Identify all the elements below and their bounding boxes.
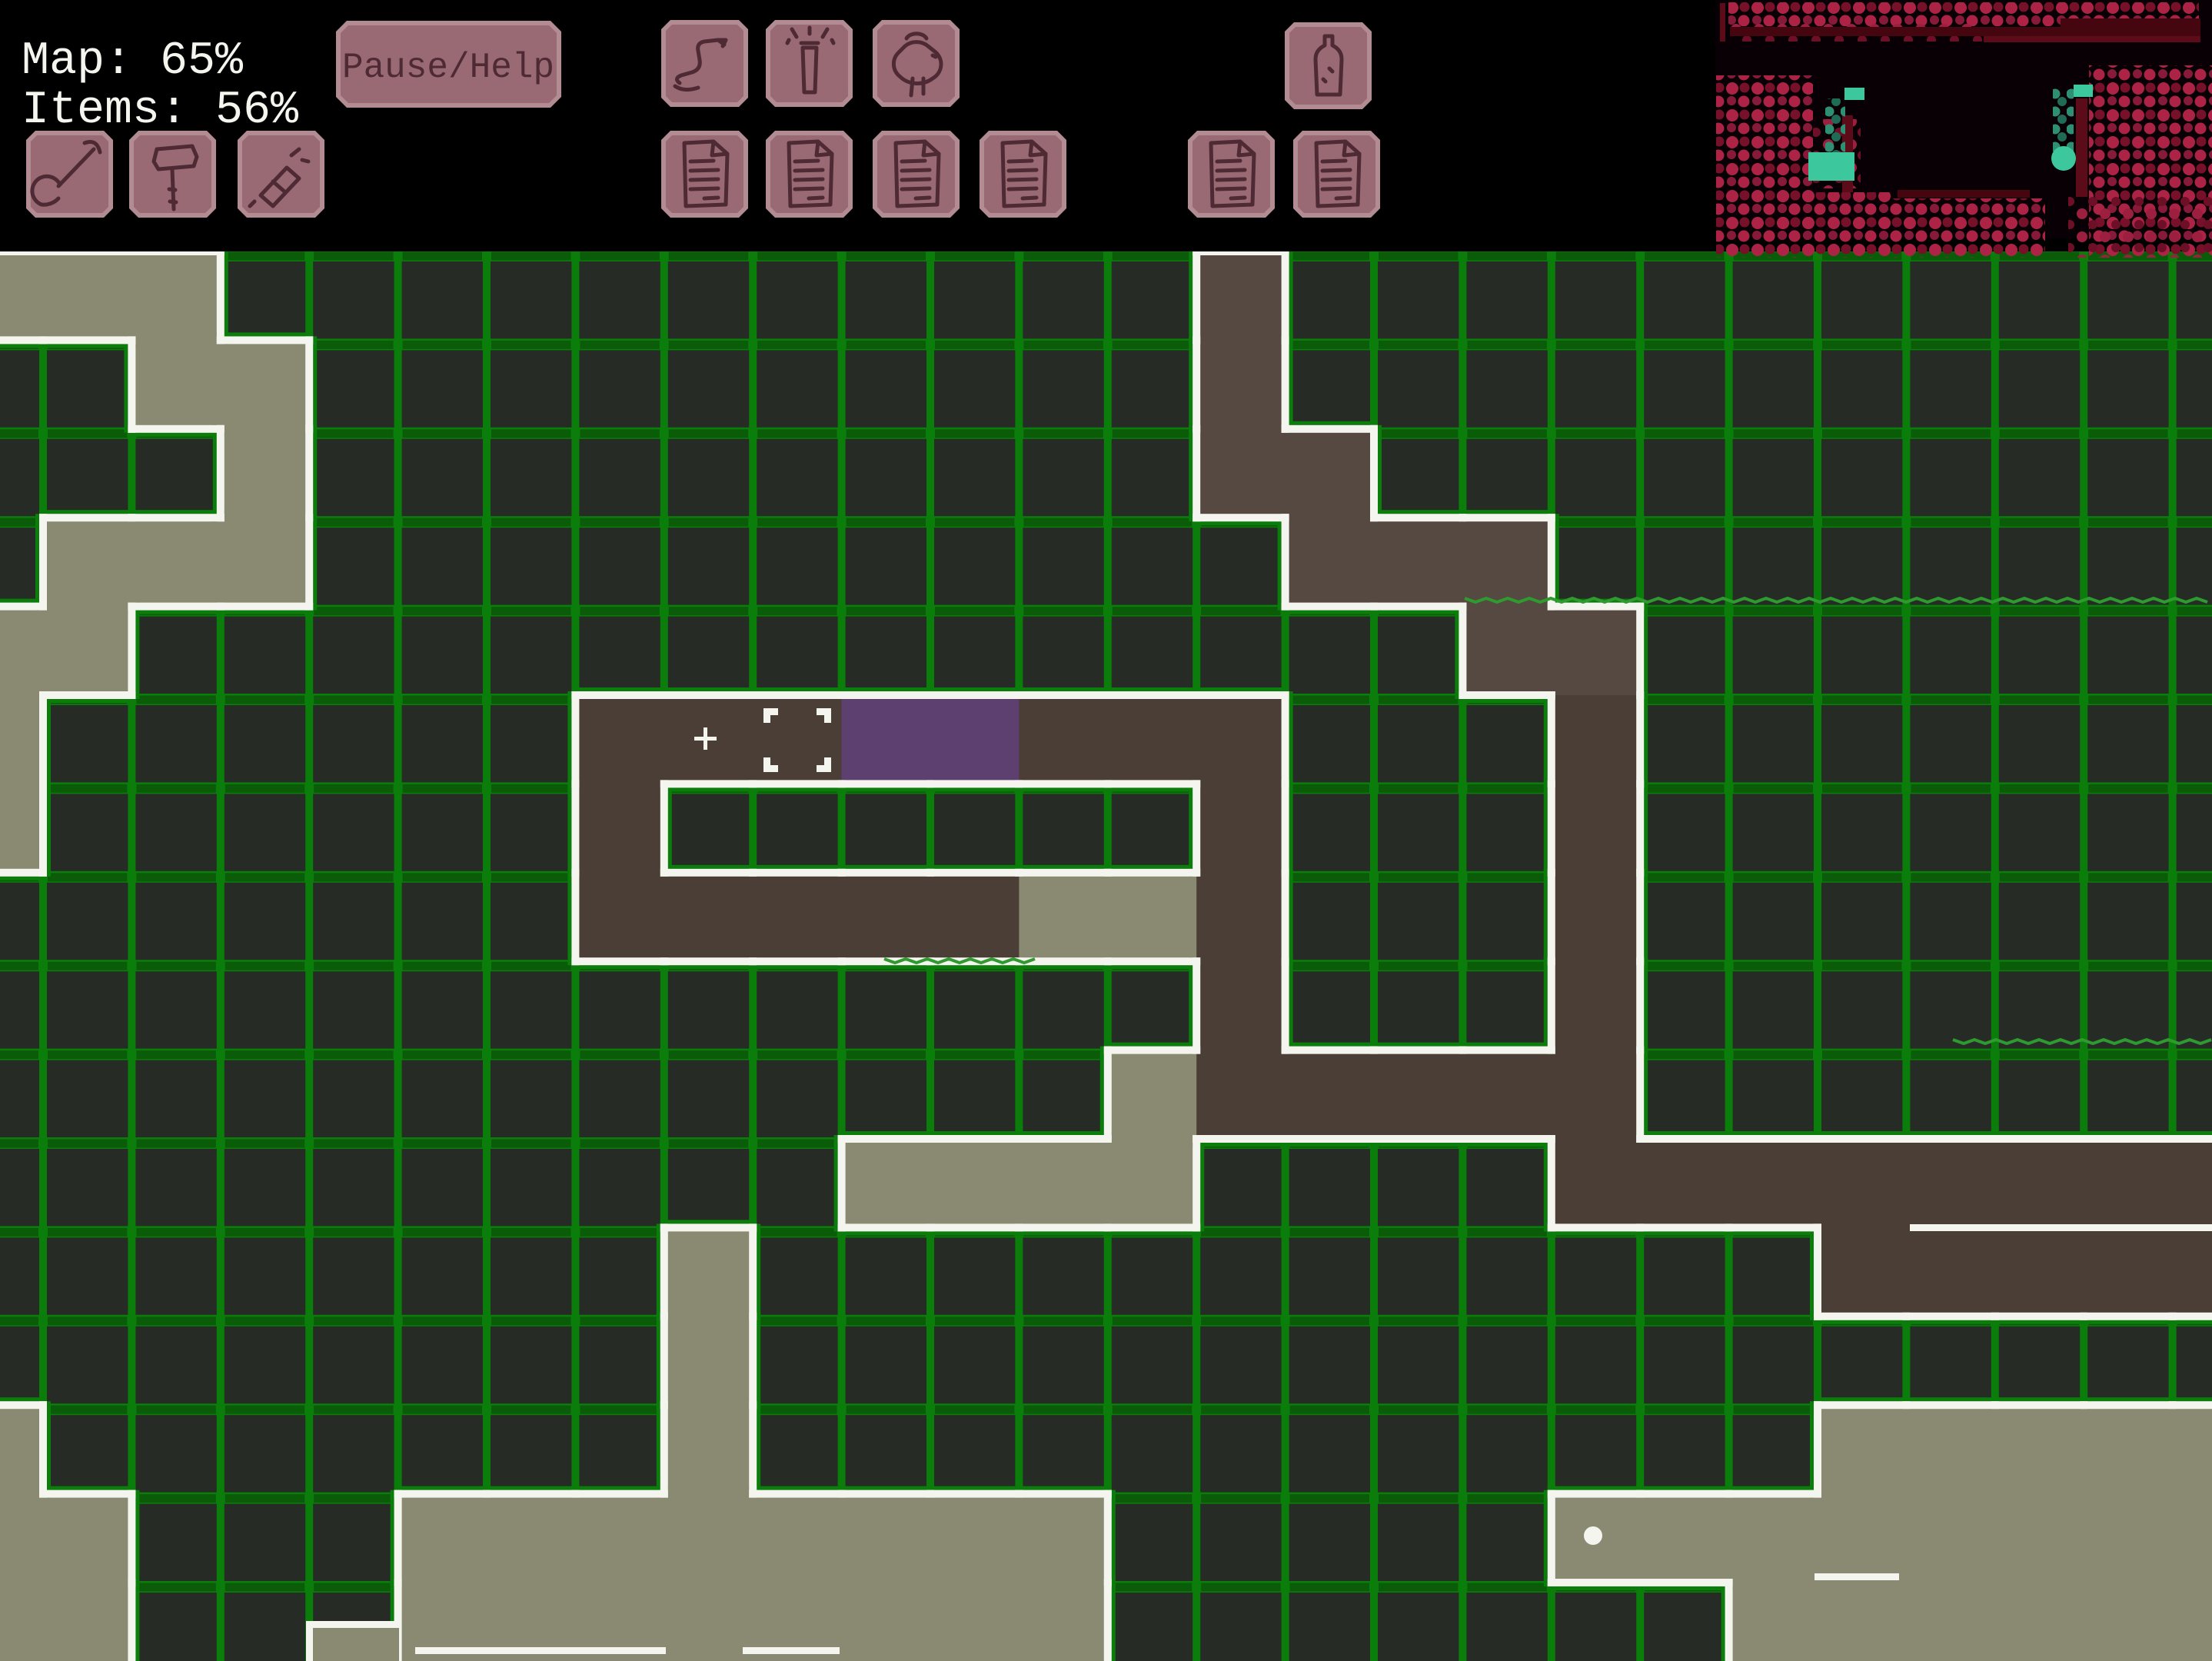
svg-text:Map: 65%: Map: 65% xyxy=(22,35,244,88)
svg-text:Pause/Help: Pause/Help xyxy=(342,48,554,88)
svg-text:Items: 56%: Items: 56% xyxy=(22,85,299,137)
